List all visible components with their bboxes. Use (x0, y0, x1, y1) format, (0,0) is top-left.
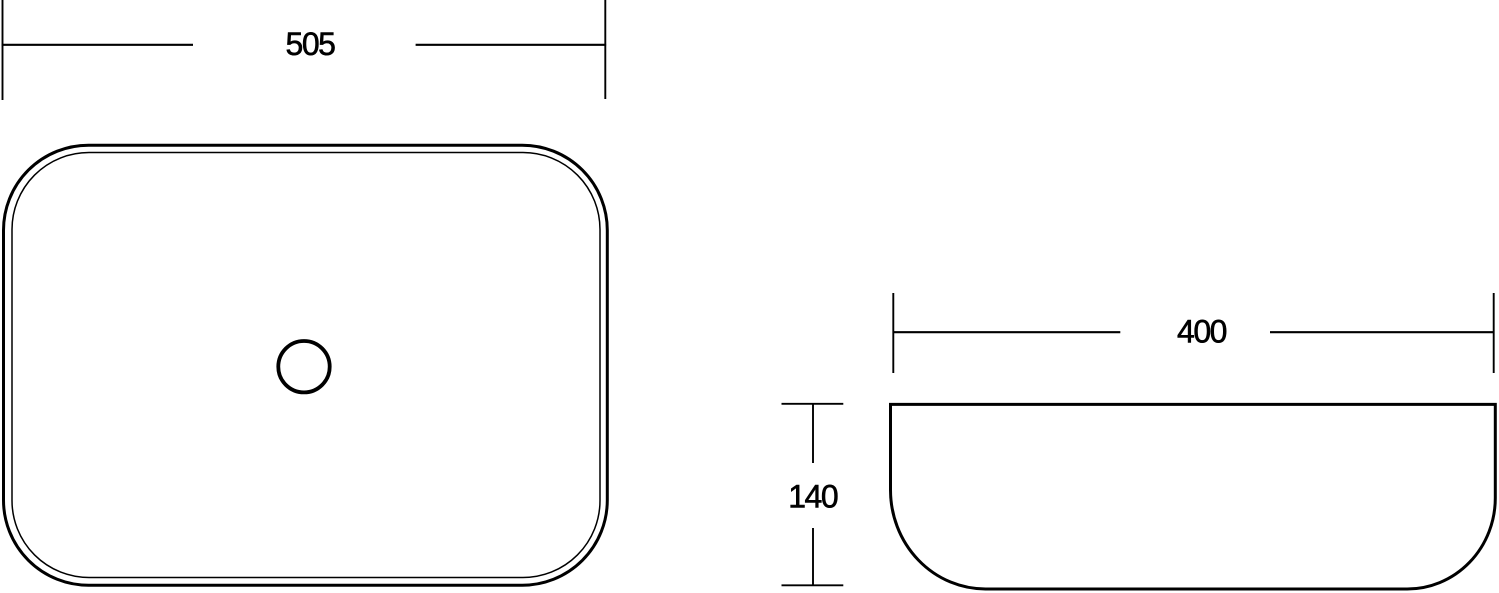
svg-text:140: 140 (788, 479, 838, 515)
svg-text:400: 400 (1177, 314, 1227, 350)
svg-text:505: 505 (286, 26, 336, 62)
